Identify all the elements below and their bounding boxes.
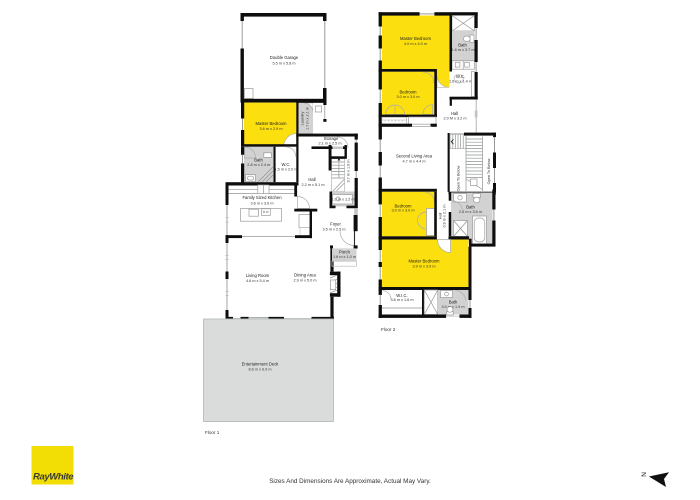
svg-text:Second Living Area: Second Living Area — [396, 154, 433, 159]
svg-text:1.6 m x 1.0 m: 1.6 m x 1.0 m — [333, 255, 356, 259]
svg-text:Open To Below: Open To Below — [457, 165, 461, 191]
svg-text:Master Bedroom: Master Bedroom — [256, 121, 287, 126]
svg-text:4.0 m x 4.0 m: 4.0 m x 4.0 m — [404, 42, 427, 46]
svg-text:W.C.: W.C. — [456, 74, 465, 79]
svg-text:Bath: Bath — [466, 205, 475, 210]
svg-text:Foyer: Foyer — [330, 222, 341, 227]
svg-text:4.6 m x 5.4 m: 4.6 m x 5.4 m — [246, 279, 269, 283]
svg-text:Bath: Bath — [458, 43, 467, 48]
svg-text:Laundry: Laundry — [301, 112, 305, 126]
svg-text:2.2 m x 5.1 m: 2.2 m x 5.1 m — [301, 183, 324, 187]
svg-text:1.6 m x 1.4 m: 1.6 m x 1.4 m — [449, 80, 472, 84]
svg-text:0.9 m x 2.1 m: 0.9 m x 2.1 m — [443, 204, 447, 227]
svg-text:Hall: Hall — [308, 177, 315, 182]
svg-text:Entertainment Deck: Entertainment Deck — [242, 362, 280, 367]
svg-text:3.0 m x 3.0 m: 3.0 m x 3.0 m — [391, 209, 414, 213]
svg-text:Porch: Porch — [339, 250, 351, 255]
svg-text:Dining Area: Dining Area — [294, 273, 316, 278]
svg-text:3.6 m x 3.6 m: 3.6 m x 3.6 m — [250, 202, 273, 206]
svg-text:1.0 m x 1.2 m: 1.0 m x 1.2 m — [331, 198, 354, 202]
svg-text:Open To Below: Open To Below — [487, 158, 491, 184]
svg-text:2.8 m x 2.4 m: 2.8 m x 2.4 m — [247, 163, 270, 167]
svg-text:2.1 m x 2.5 m: 2.1 m x 2.5 m — [318, 142, 341, 146]
svg-text:Family Sized Kitchen: Family Sized Kitchen — [242, 195, 282, 200]
svg-text:4.7 m x 4.4 m: 4.7 m x 4.4 m — [402, 159, 425, 163]
svg-text:3.6 m x 2.9 m: 3.6 m x 2.9 m — [259, 127, 282, 131]
svg-text:5.5 m x 5.8 m: 5.5 m x 5.8 m — [272, 62, 295, 66]
svg-text:N: N — [640, 472, 647, 477]
svg-text:3.6 m x 1.6 m: 3.6 m x 1.6 m — [390, 298, 413, 302]
svg-text:3.0 m x 3.0 m: 3.0 m x 3.0 m — [396, 95, 419, 99]
svg-text:Bedroom: Bedroom — [400, 89, 418, 94]
svg-text:1.5 m x 2.0 m: 1.5 m x 2.0 m — [274, 168, 297, 172]
svg-text:2.0 M x 3.2 m: 2.0 M x 3.2 m — [443, 116, 466, 120]
svg-text:Master Bedroom: Master Bedroom — [400, 36, 431, 41]
svg-text:Living Room: Living Room — [246, 273, 270, 278]
svg-text:RayWhite: RayWhite — [33, 472, 74, 483]
svg-text:Floor 1: Floor 1 — [205, 430, 220, 435]
svg-text:Sizes And Dimensions Are Appro: Sizes And Dimensions Are Approximate, Ac… — [269, 478, 431, 485]
svg-text:3.7 m x 1.0 m: 3.7 m x 1.0 m — [347, 159, 351, 182]
svg-text:2.9 m x 5.0 m: 2.9 m x 5.0 m — [293, 279, 316, 283]
svg-text:3.5 m x 2.5 m: 3.5 m x 2.5 m — [322, 228, 345, 232]
svg-text:W.C.: W.C. — [281, 162, 290, 167]
svg-text:Bath: Bath — [449, 300, 458, 305]
svg-text:3.9 m x 3.9 m: 3.9 m x 3.9 m — [412, 264, 435, 268]
svg-text:1.6 m x 3.7 m: 1.6 m x 3.7 m — [451, 48, 474, 52]
svg-text:Floor 2: Floor 2 — [381, 327, 396, 332]
svg-text:Storage: Storage — [324, 136, 339, 141]
svg-text:Double Garage: Double Garage — [270, 55, 299, 60]
svg-text:8.6 m x 6.9 m: 8.6 m x 6.9 m — [248, 368, 271, 372]
svg-text:Master Bedroom: Master Bedroom — [409, 259, 440, 264]
svg-text:1.7 m x 2.1 m: 1.7 m x 2.1 m — [306, 107, 310, 130]
